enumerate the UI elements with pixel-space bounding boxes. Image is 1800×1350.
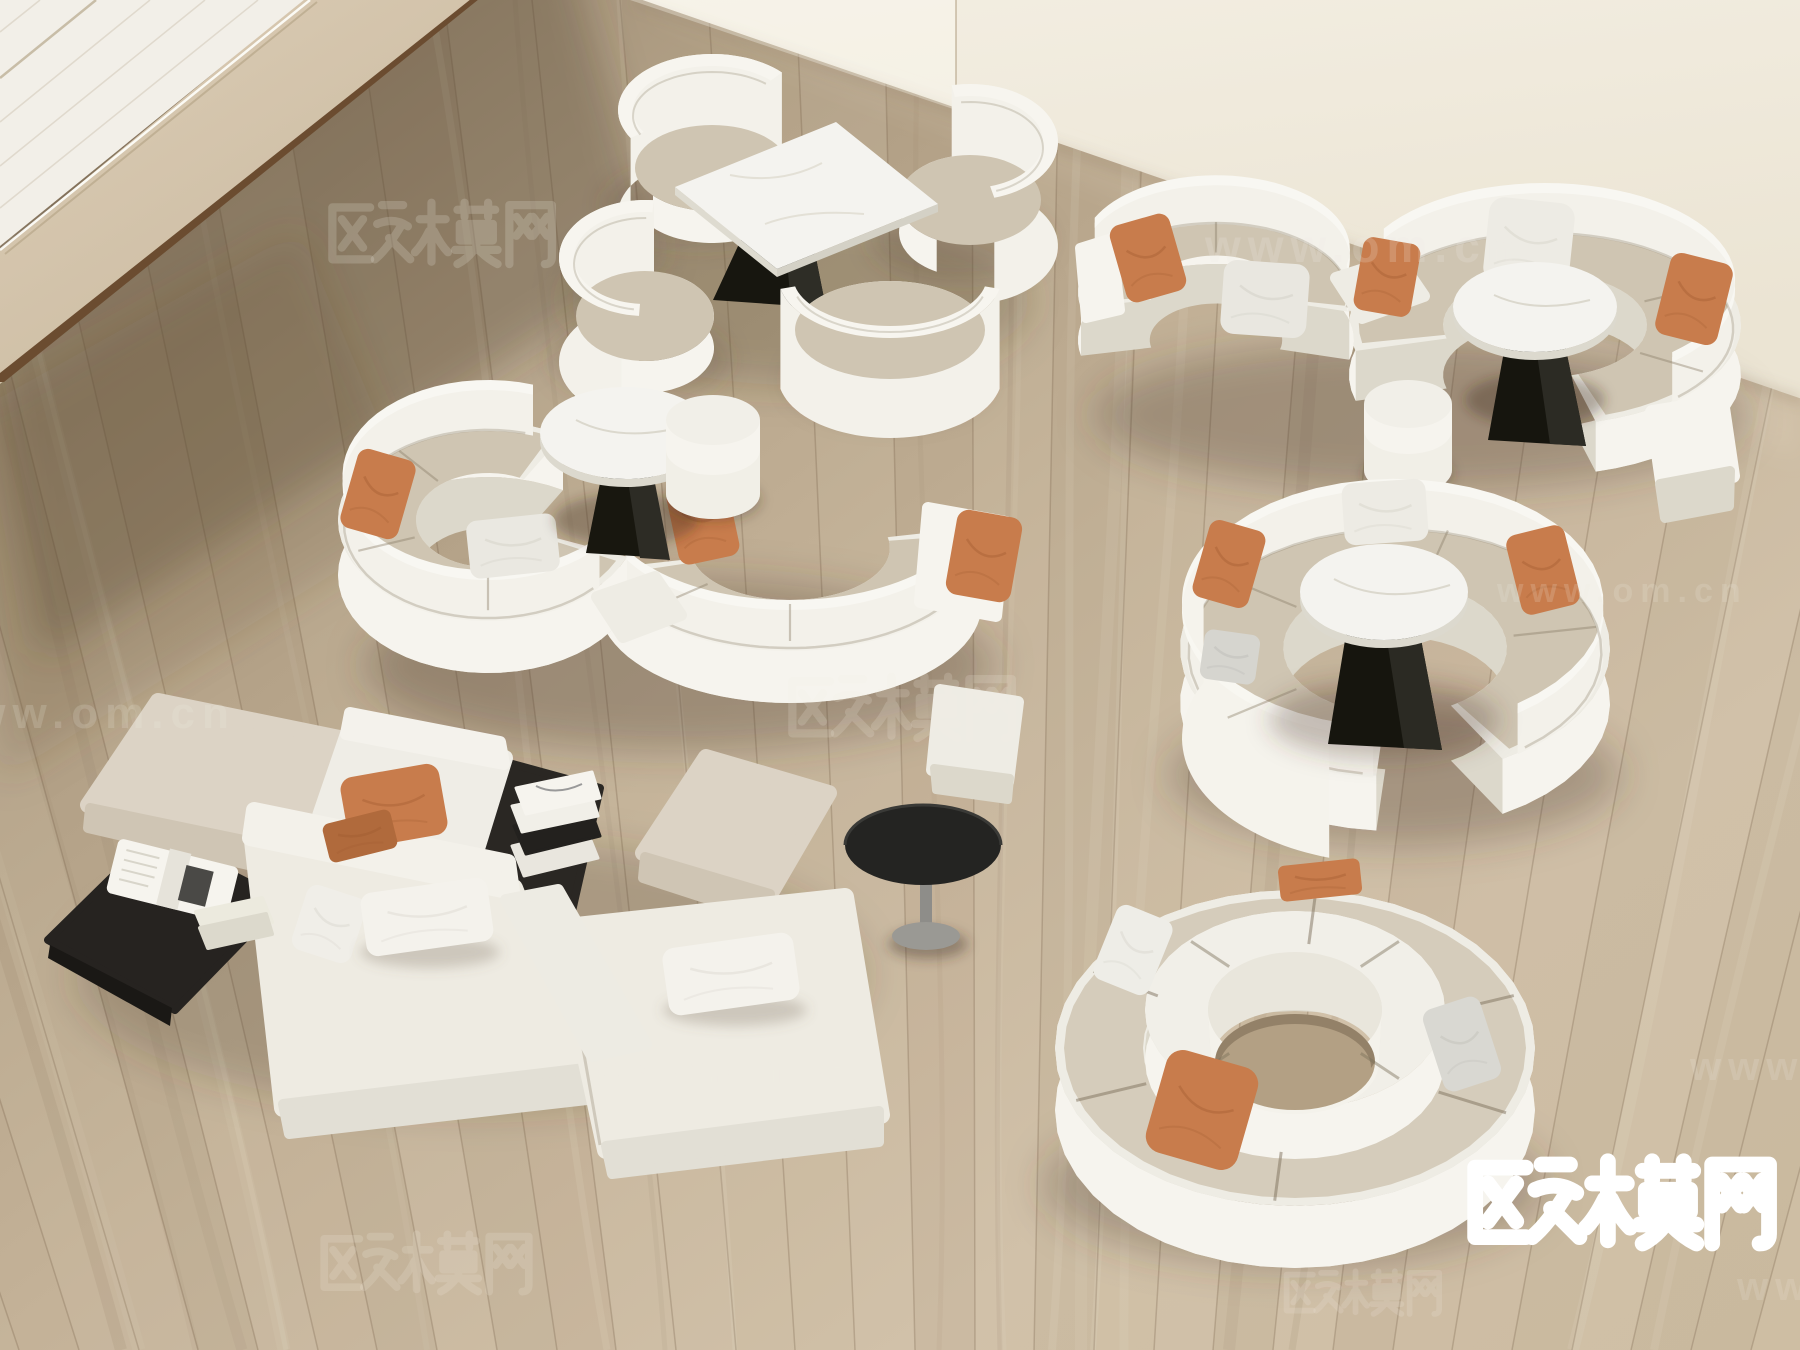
- svg-text:www.om.cn: www.om.cn: [595, 1047, 880, 1091]
- svg-text:www.om.cn: www.om.cn: [0, 689, 236, 738]
- svg-text:www.om.cn: www.om.cn: [1496, 572, 1748, 610]
- svg-text:www.om.cn: www.om.cn: [1204, 220, 1522, 272]
- svg-text:www.om.cn: www.om.cn: [1736, 1265, 1800, 1309]
- svg-text:www.om.cn: www.om.cn: [1689, 1045, 1800, 1089]
